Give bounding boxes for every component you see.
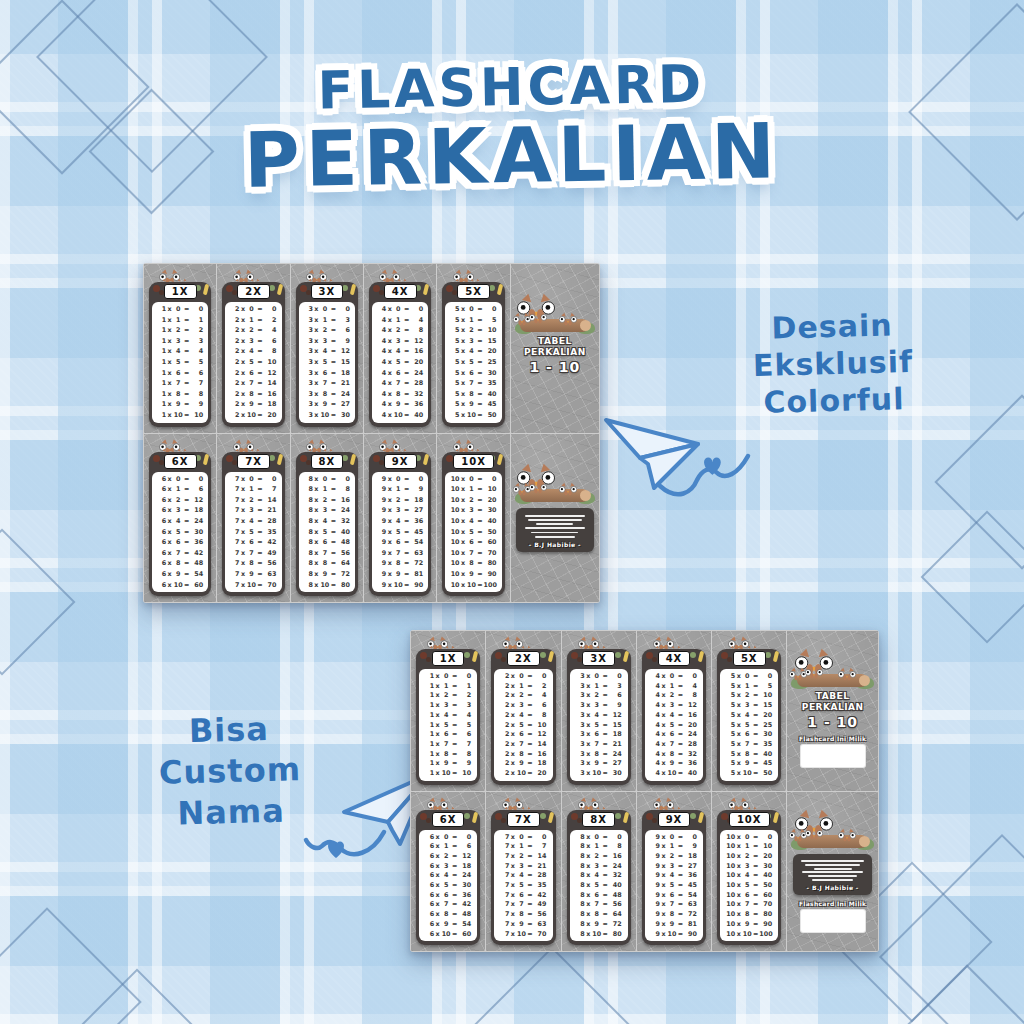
multiplication-row: 10x9 =90 [722, 921, 776, 927]
flashcard-frame: 5X 5x0 =0 5x1 =5 5x2 =10 5x3 =15 5x4 =20… [717, 649, 781, 785]
multiplication-row: 9x6 =54 [374, 539, 426, 545]
multiplication-row: 1x7 =7 [421, 741, 475, 747]
multiplication-row: 3x3 =9 [572, 702, 626, 708]
promo-poster: FLASHCARD PERKALIAN Desain Eksklusif Col… [0, 0, 1024, 1024]
multiplication-row: 9x0 =0 [374, 476, 426, 482]
multiplication-row: 2x2 =4 [227, 327, 279, 333]
multiplication-row: 4x4 =16 [647, 712, 701, 718]
multiplication-row: 4x0 =0 [374, 306, 426, 312]
multiplication-table: 10x0 =0 10x1 =10 10x2 =20 10x3 =30 10x4 … [445, 472, 501, 593]
multiplication-row: 5x5 =25 [722, 722, 776, 728]
quote-box: - B.J Habibie - [793, 854, 872, 895]
multiplication-row: 2x8 =16 [496, 751, 550, 757]
flashcard-frame: 1X 1x0 =0 1x1 =1 1x2 =2 1x3 =3 1x4 =4 1x… [416, 649, 480, 785]
flashcard-8x: 8X 8x0 =0 8x1 =8 8x2 =16 8x3 =24 8x4 =32… [291, 434, 363, 603]
multiplication-row: 1x5 =5 [154, 359, 206, 365]
multiplication-row: 9x5 =45 [374, 529, 426, 535]
multiplication-row: 2x3 =6 [227, 338, 279, 344]
multiplication-row: 4x1 =4 [647, 683, 701, 689]
flashcard-2x: 2X 2x0 =0 2x1 =2 2x2 =4 2x3 =6 2x4 =8 2x… [217, 264, 289, 433]
multiplication-row: 9x8 =72 [647, 911, 701, 917]
multiplication-row: 5x7 =35 [722, 741, 776, 747]
multiplication-row: 4x9 =36 [647, 760, 701, 766]
multiplication-row: 9x6 =54 [647, 892, 701, 898]
flashcard-5x: 5X 5x0 =0 5x1 =5 5x2 =10 5x3 =15 5x4 =20… [712, 631, 786, 791]
flashcard-label: 6X [164, 454, 197, 469]
sheet-info-panel-top: TABELPERKALIAN 1 - 10 Flashcard Ini Mili… [787, 631, 878, 791]
sheet-info-panel-bottom: - B.J Habibie - [511, 434, 599, 603]
multiplication-row: 4x3 =12 [374, 338, 426, 344]
multiplication-row: 5x3 =15 [447, 338, 499, 344]
owl-family-illustration [791, 796, 874, 850]
multiplication-row: 6x0 =0 [154, 476, 206, 482]
multiplication-table: 8x0 =0 8x1 =8 8x2 =16 8x3 =24 8x4 =32 8x… [570, 830, 628, 942]
multiplication-row: 6x4 =24 [154, 518, 206, 524]
multiplication-row: 1x3 =3 [421, 702, 475, 708]
multiplication-row: 3x1 =3 [572, 683, 626, 689]
multiplication-row: 10x5 =50 [447, 529, 499, 535]
flashcard-frame: 10X 10x0 =0 10x1 =10 10x2 =20 10x3 =30 1… [442, 452, 504, 597]
flashcard-1x: 1X 1x0 =0 1x1 =1 1x2 =2 1x3 =3 1x4 =4 1x… [144, 264, 216, 433]
multiplication-row: 9x8 =72 [374, 560, 426, 566]
multiplication-row: 5x7 =35 [447, 380, 499, 386]
flashcard-9x: 9X 9x0 =0 9x1 =9 9x2 =18 9x3 =27 9x4 =36… [637, 792, 711, 952]
multiplication-row: 1x10 =10 [421, 770, 475, 776]
multiplication-table: 10x0 =0 10x1 =10 10x2 =20 10x3 =30 10x4 … [720, 830, 778, 942]
flashcard-label: 10X [453, 454, 494, 469]
multiplication-row: 1x0 =0 [154, 306, 206, 312]
multiplication-row: 4x2 =8 [647, 692, 701, 698]
flashcard-6x: 6X 6x0 =0 6x1 =6 6x2 =12 6x3 =18 6x4 =24… [411, 792, 485, 952]
multiplication-row: 5x6 =30 [447, 370, 499, 376]
flashcard-label: 8X [311, 454, 344, 469]
multiplication-row: 1x2 =2 [154, 327, 206, 333]
multiplication-row: 6x5 =30 [154, 529, 206, 535]
flashcard-frame: 2X 2x0 =0 2x1 =2 2x2 =4 2x3 =6 2x4 =8 2x… [222, 282, 284, 427]
flashcard-4x: 4X 4x0 =0 4x1 =4 4x2 =8 4x3 =12 4x4 =16 … [637, 631, 711, 791]
multiplication-row: 3x10 =30 [572, 770, 626, 776]
multiplication-row: 2x4 =8 [496, 712, 550, 718]
multiplication-row: 4x8 =32 [374, 391, 426, 397]
multiplication-row: 5x10 =50 [722, 770, 776, 776]
multiplication-row: 10x2 =20 [447, 497, 499, 503]
multiplication-row: 3x6 =18 [301, 370, 353, 376]
multiplication-row: 10x2 =20 [722, 853, 776, 859]
multiplication-row: 2x5 =10 [227, 359, 279, 365]
multiplication-row: 8x5 =40 [572, 882, 626, 888]
multiplication-row: 1x6 =6 [154, 370, 206, 376]
multiplication-row: 1x9 =9 [154, 401, 206, 407]
diamond-decoration [471, 946, 632, 1024]
name-label: Flashcard Ini Milik [799, 735, 866, 742]
flashcard-9x: 9X 9x0 =0 9x1 =9 9x2 =18 9x3 =27 9x4 =36… [364, 434, 436, 603]
annotation-line: Bisa [130, 707, 327, 753]
multiplication-row: 3x7 =21 [301, 380, 353, 386]
multiplication-row: 4x8 =32 [647, 751, 701, 757]
annotation-line: Desain [727, 305, 938, 347]
multiplication-row: 7x1 =7 [496, 843, 550, 849]
multiplication-row: 8x0 =0 [301, 476, 353, 482]
flashcard-frame: 1X 1x0 =0 1x1 =1 1x2 =2 1x3 =3 1x4 =4 1x… [149, 282, 211, 427]
flashcard-1x: 1X 1x0 =0 1x1 =1 1x2 =2 1x3 =3 1x4 =4 1x… [411, 631, 485, 791]
flashcard-frame: 7X 7x0 =0 7x1 =7 7x2 =14 7x3 =21 7x4 =28… [222, 452, 284, 597]
multiplication-row: 6x8 =48 [421, 911, 475, 917]
multiplication-row: 8x2 =16 [572, 853, 626, 859]
multiplication-row: 8x10 =80 [572, 931, 626, 937]
multiplication-row: 9x3 =27 [374, 507, 426, 513]
name-label: Flashcard Ini Milik [799, 900, 866, 907]
multiplication-row: 3x9 =27 [572, 760, 626, 766]
multiplication-table: 5x0 =0 5x1 =5 5x2 =10 5x3 =15 5x4 =20 5x… [445, 302, 501, 423]
flashcard-4x: 4X 4x0 =0 4x1 =4 4x2 =8 4x3 =12 4x4 =16 … [364, 264, 436, 433]
multiplication-row: 4x7 =28 [647, 741, 701, 747]
multiplication-row: 3x9 =27 [301, 401, 353, 407]
multiplication-row: 2x5 =10 [496, 722, 550, 728]
multiplication-row: 7x7 =49 [227, 550, 279, 556]
owl-illustration [847, 828, 865, 843]
annotation-line: Eksklusif [728, 342, 939, 384]
tabel-range: 1 - 10 [807, 714, 858, 730]
flashcard-label: 3X [582, 651, 615, 666]
poster-title: FLASHCARD PERKALIAN [0, 49, 1024, 205]
multiplication-row: 6x10 =60 [421, 931, 475, 937]
multiplication-row: 1x5 =5 [421, 722, 475, 728]
multiplication-row: 6x2 =12 [154, 497, 206, 503]
owl-illustration [568, 482, 586, 497]
flashcard-frame: 4X 4x0 =0 4x1 =4 4x2 =8 4x3 =12 4x4 =16 … [642, 649, 706, 785]
multiplication-row: 3x3 =9 [301, 338, 353, 344]
multiplication-row: 10x8 =80 [722, 911, 776, 917]
flashcard-label: 6X [432, 812, 465, 827]
multiplication-row: 4x5 =20 [647, 722, 701, 728]
multiplication-row: 6x9 =54 [421, 921, 475, 927]
multiplication-row: 7x6 =42 [227, 539, 279, 545]
multiplication-row: 7x4 =28 [227, 518, 279, 524]
flashcard-5x: 5X 5x0 =0 5x1 =5 5x2 =10 5x3 =15 5x4 =20… [437, 264, 509, 433]
multiplication-table: 1x0 =0 1x1 =1 1x2 =2 1x3 =3 1x4 =4 1x5 =… [419, 669, 477, 781]
multiplication-row: 8x5 =40 [301, 529, 353, 535]
multiplication-row: 5x0 =0 [722, 673, 776, 679]
multiplication-row: 6x1 =6 [154, 486, 206, 492]
flashcard-frame: 10X 10x0 =0 10x1 =10 10x2 =20 10x3 =30 1… [717, 810, 781, 946]
multiplication-row: 9x10 =90 [647, 931, 701, 937]
multiplication-row: 9x4 =36 [647, 872, 701, 878]
flashcard-label: 4X [658, 651, 691, 666]
tabel-range: 1 - 10 [529, 359, 580, 375]
diamond-decoration [0, 528, 76, 675]
flashcard-frame: 8X 8x0 =0 8x1 =8 8x2 =16 8x3 =24 8x4 =32… [567, 810, 631, 946]
owl-family-illustration [791, 635, 874, 689]
multiplication-row: 6x6 =36 [154, 539, 206, 545]
multiplication-row: 10x9 =90 [447, 571, 499, 577]
multiplication-row: 10x6 =60 [722, 892, 776, 898]
flashcard-2x: 2X 2x0 =0 2x1 =2 2x2 =4 2x3 =6 2x4 =8 2x… [486, 631, 560, 791]
multiplication-row: 5x1 =5 [447, 317, 499, 323]
multiplication-row: 4x7 =28 [374, 380, 426, 386]
multiplication-row: 1x2 =2 [421, 692, 475, 698]
multiplication-row: 3x2 =6 [572, 692, 626, 698]
multiplication-row: 3x10 =30 [301, 412, 353, 418]
multiplication-row: 7x10 =70 [227, 582, 279, 588]
multiplication-row: 1x0 =0 [421, 673, 475, 679]
flashcard-frame: 3X 3x0 =0 3x1 =3 3x2 =6 3x3 =9 3x4 =12 3… [567, 649, 631, 785]
flashcard-label: 2X [237, 284, 270, 299]
multiplication-row: 4x6 =24 [647, 731, 701, 737]
multiplication-row: 10x10 =100 [722, 931, 776, 937]
paper-airplane-doodle [598, 400, 763, 510]
multiplication-row: 8x9 =72 [572, 921, 626, 927]
multiplication-row: 2x0 =0 [496, 673, 550, 679]
multiplication-row: 5x10 =50 [447, 412, 499, 418]
owl-illustration [814, 826, 832, 841]
multiplication-row: 2x9 =18 [496, 760, 550, 766]
owl-illustration [847, 668, 865, 683]
multiplication-row: 8x3 =24 [301, 507, 353, 513]
multiplication-row: 9x7 =63 [374, 550, 426, 556]
multiplication-row: 6x4 =24 [421, 872, 475, 878]
tabel-perkalian-title: TABELPERKALIAN [802, 691, 864, 713]
quote-box: - B.J Habibie - [516, 508, 593, 552]
multiplication-row: 1x1 =1 [154, 317, 206, 323]
flashcard-label: 4X [384, 284, 417, 299]
multiplication-row: 8x8 =64 [572, 911, 626, 917]
flashcard-label: 3X [311, 284, 344, 299]
multiplication-row: 1x8 =8 [421, 751, 475, 757]
multiplication-row: 5x8 =40 [722, 751, 776, 757]
multiplication-row: 8x2 =16 [301, 497, 353, 503]
multiplication-row: 10x0 =0 [447, 476, 499, 482]
multiplication-row: 3x5 =15 [301, 359, 353, 365]
multiplication-row: 9x7 =63 [647, 901, 701, 907]
multiplication-row: 4x4 =16 [374, 348, 426, 354]
multiplication-row: 10x7 =70 [722, 901, 776, 907]
multiplication-row: 1x4 =4 [154, 348, 206, 354]
multiplication-row: 7x9 =63 [496, 921, 550, 927]
multiplication-row: 7x5 =35 [496, 882, 550, 888]
multiplication-row: 7x3 =21 [496, 863, 550, 869]
multiplication-row: 5x9 =45 [447, 401, 499, 407]
multiplication-row: 5x6 =30 [722, 731, 776, 737]
multiplication-row: 4x5 =20 [374, 359, 426, 365]
multiplication-row: 8x1 =8 [301, 486, 353, 492]
owl-family-illustration [515, 438, 595, 504]
multiplication-row: 4x10 =40 [647, 770, 701, 776]
flashcard-label: 9X [384, 454, 417, 469]
flashcard-label: 5X [733, 651, 766, 666]
multiplication-row: 8x9 =72 [301, 571, 353, 577]
multiplication-row: 9x1 =9 [647, 843, 701, 849]
flashcard-frame: 9X 9x0 =0 9x1 =9 9x2 =18 9x3 =27 9x4 =36… [369, 452, 431, 597]
multiplication-row: 6x7 =42 [154, 550, 206, 556]
multiplication-row: 5x4 =20 [722, 712, 776, 718]
multiplication-row: 6x5 =30 [421, 882, 475, 888]
title-line-perkalian: PERKALIAN [0, 107, 1024, 205]
multiplication-row: 10x1 =10 [447, 486, 499, 492]
multiplication-row: 3x7 =21 [572, 741, 626, 747]
flashcard-sheet-bottom: 1X 1x0 =0 1x1 =1 1x2 =2 1x3 =3 1x4 =4 1x… [410, 630, 879, 952]
flashcard-label: 10X [729, 812, 770, 827]
multiplication-row: 8x10 =80 [301, 582, 353, 588]
multiplication-row: 2x9 =18 [227, 401, 279, 407]
multiplication-row: 7x7 =49 [496, 901, 550, 907]
multiplication-table: 9x0 =0 9x1 =9 9x2 =18 9x3 =27 9x4 =36 9x… [645, 830, 703, 942]
multiplication-row: 2x7 =14 [496, 741, 550, 747]
multiplication-row: 6x2 =12 [421, 853, 475, 859]
tabel-perkalian-title: TABELPERKALIAN [524, 336, 586, 358]
owl-illustration [538, 311, 556, 326]
multiplication-row: 7x5 =35 [227, 529, 279, 535]
multiplication-row: 10x10 =100 [447, 582, 499, 588]
multiplication-row: 9x9 =81 [374, 571, 426, 577]
multiplication-row: 10x6 =60 [447, 539, 499, 545]
flashcard-label: 5X [457, 284, 490, 299]
multiplication-row: 7x6 =42 [496, 892, 550, 898]
flashcard-frame: 3X 3x0 =0 3x1 =3 3x2 =6 3x3 =9 3x4 =12 3… [296, 282, 358, 427]
multiplication-row: 9x9 =81 [647, 921, 701, 927]
multiplication-row: 10x0 =0 [722, 834, 776, 840]
multiplication-row: 10x4 =40 [722, 872, 776, 878]
flashcard-label: 1X [432, 651, 465, 666]
multiplication-row: 1x9 =9 [421, 760, 475, 766]
flashcard-sheet-top: 1X 1x0 =0 1x1 =1 1x2 =2 1x3 =3 1x4 =4 1x… [143, 263, 600, 603]
multiplication-row: 6x9 =54 [154, 571, 206, 577]
multiplication-row: 7x0 =0 [496, 834, 550, 840]
multiplication-row: 5x3 =15 [722, 702, 776, 708]
multiplication-row: 2x8 =16 [227, 391, 279, 397]
flashcard-7x: 7X 7x0 =0 7x1 =7 7x2 =14 7x3 =21 7x4 =28… [486, 792, 560, 952]
multiplication-table: 6x0 =0 6x1 =6 6x2 =12 6x3 =18 6x4 =24 6x… [419, 830, 477, 942]
multiplication-row: 5x8 =40 [447, 391, 499, 397]
multiplication-row: 6x7 =42 [421, 901, 475, 907]
multiplication-row: 7x8 =56 [227, 560, 279, 566]
multiplication-row: 8x7 =56 [301, 550, 353, 556]
multiplication-row: 5x2 =10 [722, 692, 776, 698]
flashcard-frame: 9X 9x0 =0 9x1 =9 9x2 =18 9x3 =27 9x4 =36… [642, 810, 706, 946]
multiplication-row: 8x6 =48 [572, 892, 626, 898]
multiplication-row: 3x2 =6 [301, 327, 353, 333]
multiplication-row: 7x3 =21 [227, 507, 279, 513]
multiplication-row: 5x2 =10 [447, 327, 499, 333]
flashcard-10x: 10X 10x0 =0 10x1 =10 10x2 =20 10x3 =30 1… [437, 434, 509, 603]
multiplication-row: 7x10 =70 [496, 931, 550, 937]
multiplication-row: 10x3 =30 [722, 863, 776, 869]
multiplication-row: 1x7 =7 [154, 380, 206, 386]
multiplication-row: 10x8 =80 [447, 560, 499, 566]
multiplication-row: 2x2 =4 [496, 692, 550, 698]
multiplication-row: 2x6 =12 [227, 370, 279, 376]
multiplication-row: 8x0 =0 [572, 834, 626, 840]
multiplication-table: 7x0 =0 7x1 =7 7x2 =14 7x3 =21 7x4 =28 7x… [494, 830, 552, 942]
multiplication-row: 2x10 =20 [227, 412, 279, 418]
multiplication-row: 7x9 =63 [227, 571, 279, 577]
multiplication-row: 6x3 =18 [421, 863, 475, 869]
multiplication-row: 4x3 =12 [647, 702, 701, 708]
sheet-info-panel-top: TABELPERKALIAN 1 - 10 [511, 264, 599, 433]
flashcard-label: 7X [507, 812, 540, 827]
multiplication-table: 9x0 =0 9x1 =9 9x2 =18 9x3 =27 9x4 =36 9x… [372, 472, 428, 593]
multiplication-row: 6x8 =48 [154, 560, 206, 566]
multiplication-row: 3x4 =12 [301, 348, 353, 354]
multiplication-row: 8x1 =8 [572, 843, 626, 849]
multiplication-table: 2x0 =0 2x1 =2 2x2 =4 2x3 =6 2x4 =8 2x5 =… [225, 302, 281, 423]
flashcard-8x: 8X 8x0 =0 8x1 =8 8x2 =16 8x3 =24 8x4 =32… [562, 792, 636, 952]
multiplication-row: 9x0 =0 [647, 834, 701, 840]
multiplication-table: 3x0 =0 3x1 =3 3x2 =6 3x3 =9 3x4 =12 3x5 … [570, 669, 628, 781]
multiplication-table: 4x0 =0 4x1 =4 4x2 =8 4x3 =12 4x4 =16 4x5… [372, 302, 428, 423]
custom-name-box [800, 744, 866, 768]
multiplication-row: 10x4 =40 [447, 518, 499, 524]
multiplication-row: 4x10 =40 [374, 412, 426, 418]
multiplication-row: 5x5 =25 [447, 359, 499, 365]
multiplication-row: 9x1 =9 [374, 486, 426, 492]
quote-signature: - B.J Habibie - [521, 541, 588, 548]
multiplication-row: 4x6 =24 [374, 370, 426, 376]
multiplication-table: 2x0 =0 2x1 =2 2x2 =4 2x3 =6 2x4 =8 2x5 =… [494, 669, 552, 781]
flashcard-6x: 6X 6x0 =0 6x1 =6 6x2 =12 6x3 =18 6x4 =24… [144, 434, 216, 603]
owl-illustration [814, 666, 832, 681]
custom-name-box [800, 909, 866, 933]
owl-family-illustration [515, 268, 595, 334]
owl-illustration [538, 480, 556, 495]
multiplication-row: 5x4 =20 [447, 348, 499, 354]
multiplication-row: 9x10 =90 [374, 582, 426, 588]
flashcard-frame: 6X 6x0 =0 6x1 =6 6x2 =12 6x3 =18 6x4 =24… [416, 810, 480, 946]
flashcard-label: 1X [164, 284, 197, 299]
multiplication-row: 9x2 =18 [374, 497, 426, 503]
multiplication-row: 10x5 =50 [722, 882, 776, 888]
multiplication-row: 1x4 =4 [421, 712, 475, 718]
multiplication-row: 4x2 =8 [374, 327, 426, 333]
multiplication-row: 4x9 =36 [374, 401, 426, 407]
multiplication-table: 6x0 =0 6x1 =6 6x2 =12 6x3 =18 6x4 =24 6x… [152, 472, 208, 593]
multiplication-row: 5x1 =5 [722, 683, 776, 689]
flashcard-3x: 3X 3x0 =0 3x1 =3 3x2 =6 3x3 =9 3x4 =12 3… [562, 631, 636, 791]
multiplication-row: 10x3 =30 [447, 507, 499, 513]
multiplication-table: 3x0 =0 3x1 =3 3x2 =6 3x3 =9 3x4 =12 3x5 … [299, 302, 355, 423]
flashcard-frame: 5X 5x0 =0 5x1 =5 5x2 =10 5x3 =15 5x4 =20… [442, 282, 504, 427]
multiplication-row: 7x0 =0 [227, 476, 279, 482]
multiplication-row: 9x5 =45 [647, 882, 701, 888]
multiplication-row: 7x8 =56 [496, 911, 550, 917]
multiplication-table: 7x0 =0 7x1 =7 7x2 =14 7x3 =21 7x4 =28 7x… [225, 472, 281, 593]
quote-signature: - B.J Habibie - [798, 884, 867, 891]
multiplication-row: 3x8 =24 [301, 391, 353, 397]
multiplication-row: 8x8 =64 [301, 560, 353, 566]
owl-illustration [568, 313, 586, 328]
multiplication-row: 7x2 =14 [496, 853, 550, 859]
multiplication-row: 3x1 =3 [301, 317, 353, 323]
multiplication-row: 7x1 =7 [227, 486, 279, 492]
multiplication-row: 4x1 =4 [374, 317, 426, 323]
flashcard-frame: 8X 8x0 =0 8x1 =8 8x2 =16 8x3 =24 8x4 =32… [296, 452, 358, 597]
multiplication-table: 1x0 =0 1x1 =1 1x2 =2 1x3 =3 1x4 =4 1x5 =… [152, 302, 208, 423]
multiplication-row: 9x3 =27 [647, 863, 701, 869]
multiplication-row: 3x8 =24 [572, 751, 626, 757]
multiplication-row: 7x4 =28 [496, 872, 550, 878]
multiplication-row: 2x3 =6 [496, 702, 550, 708]
multiplication-row: 7x2 =14 [227, 497, 279, 503]
flashcard-7x: 7X 7x0 =0 7x1 =7 7x2 =14 7x3 =21 7x4 =28… [217, 434, 289, 603]
multiplication-row: 6x6 =36 [421, 892, 475, 898]
multiplication-row: 8x4 =32 [301, 518, 353, 524]
multiplication-row: 3x4 =12 [572, 712, 626, 718]
multiplication-row: 6x10 =60 [154, 582, 206, 588]
flashcard-frame: 2X 2x0 =0 2x1 =2 2x2 =4 2x3 =6 2x4 =8 2x… [491, 649, 555, 785]
multiplication-row: 2x7 =14 [227, 380, 279, 386]
flashcard-frame: 7X 7x0 =0 7x1 =7 7x2 =14 7x3 =21 7x4 =28… [491, 810, 555, 946]
multiplication-row: 3x0 =0 [572, 673, 626, 679]
multiplication-row: 1x1 =1 [421, 683, 475, 689]
